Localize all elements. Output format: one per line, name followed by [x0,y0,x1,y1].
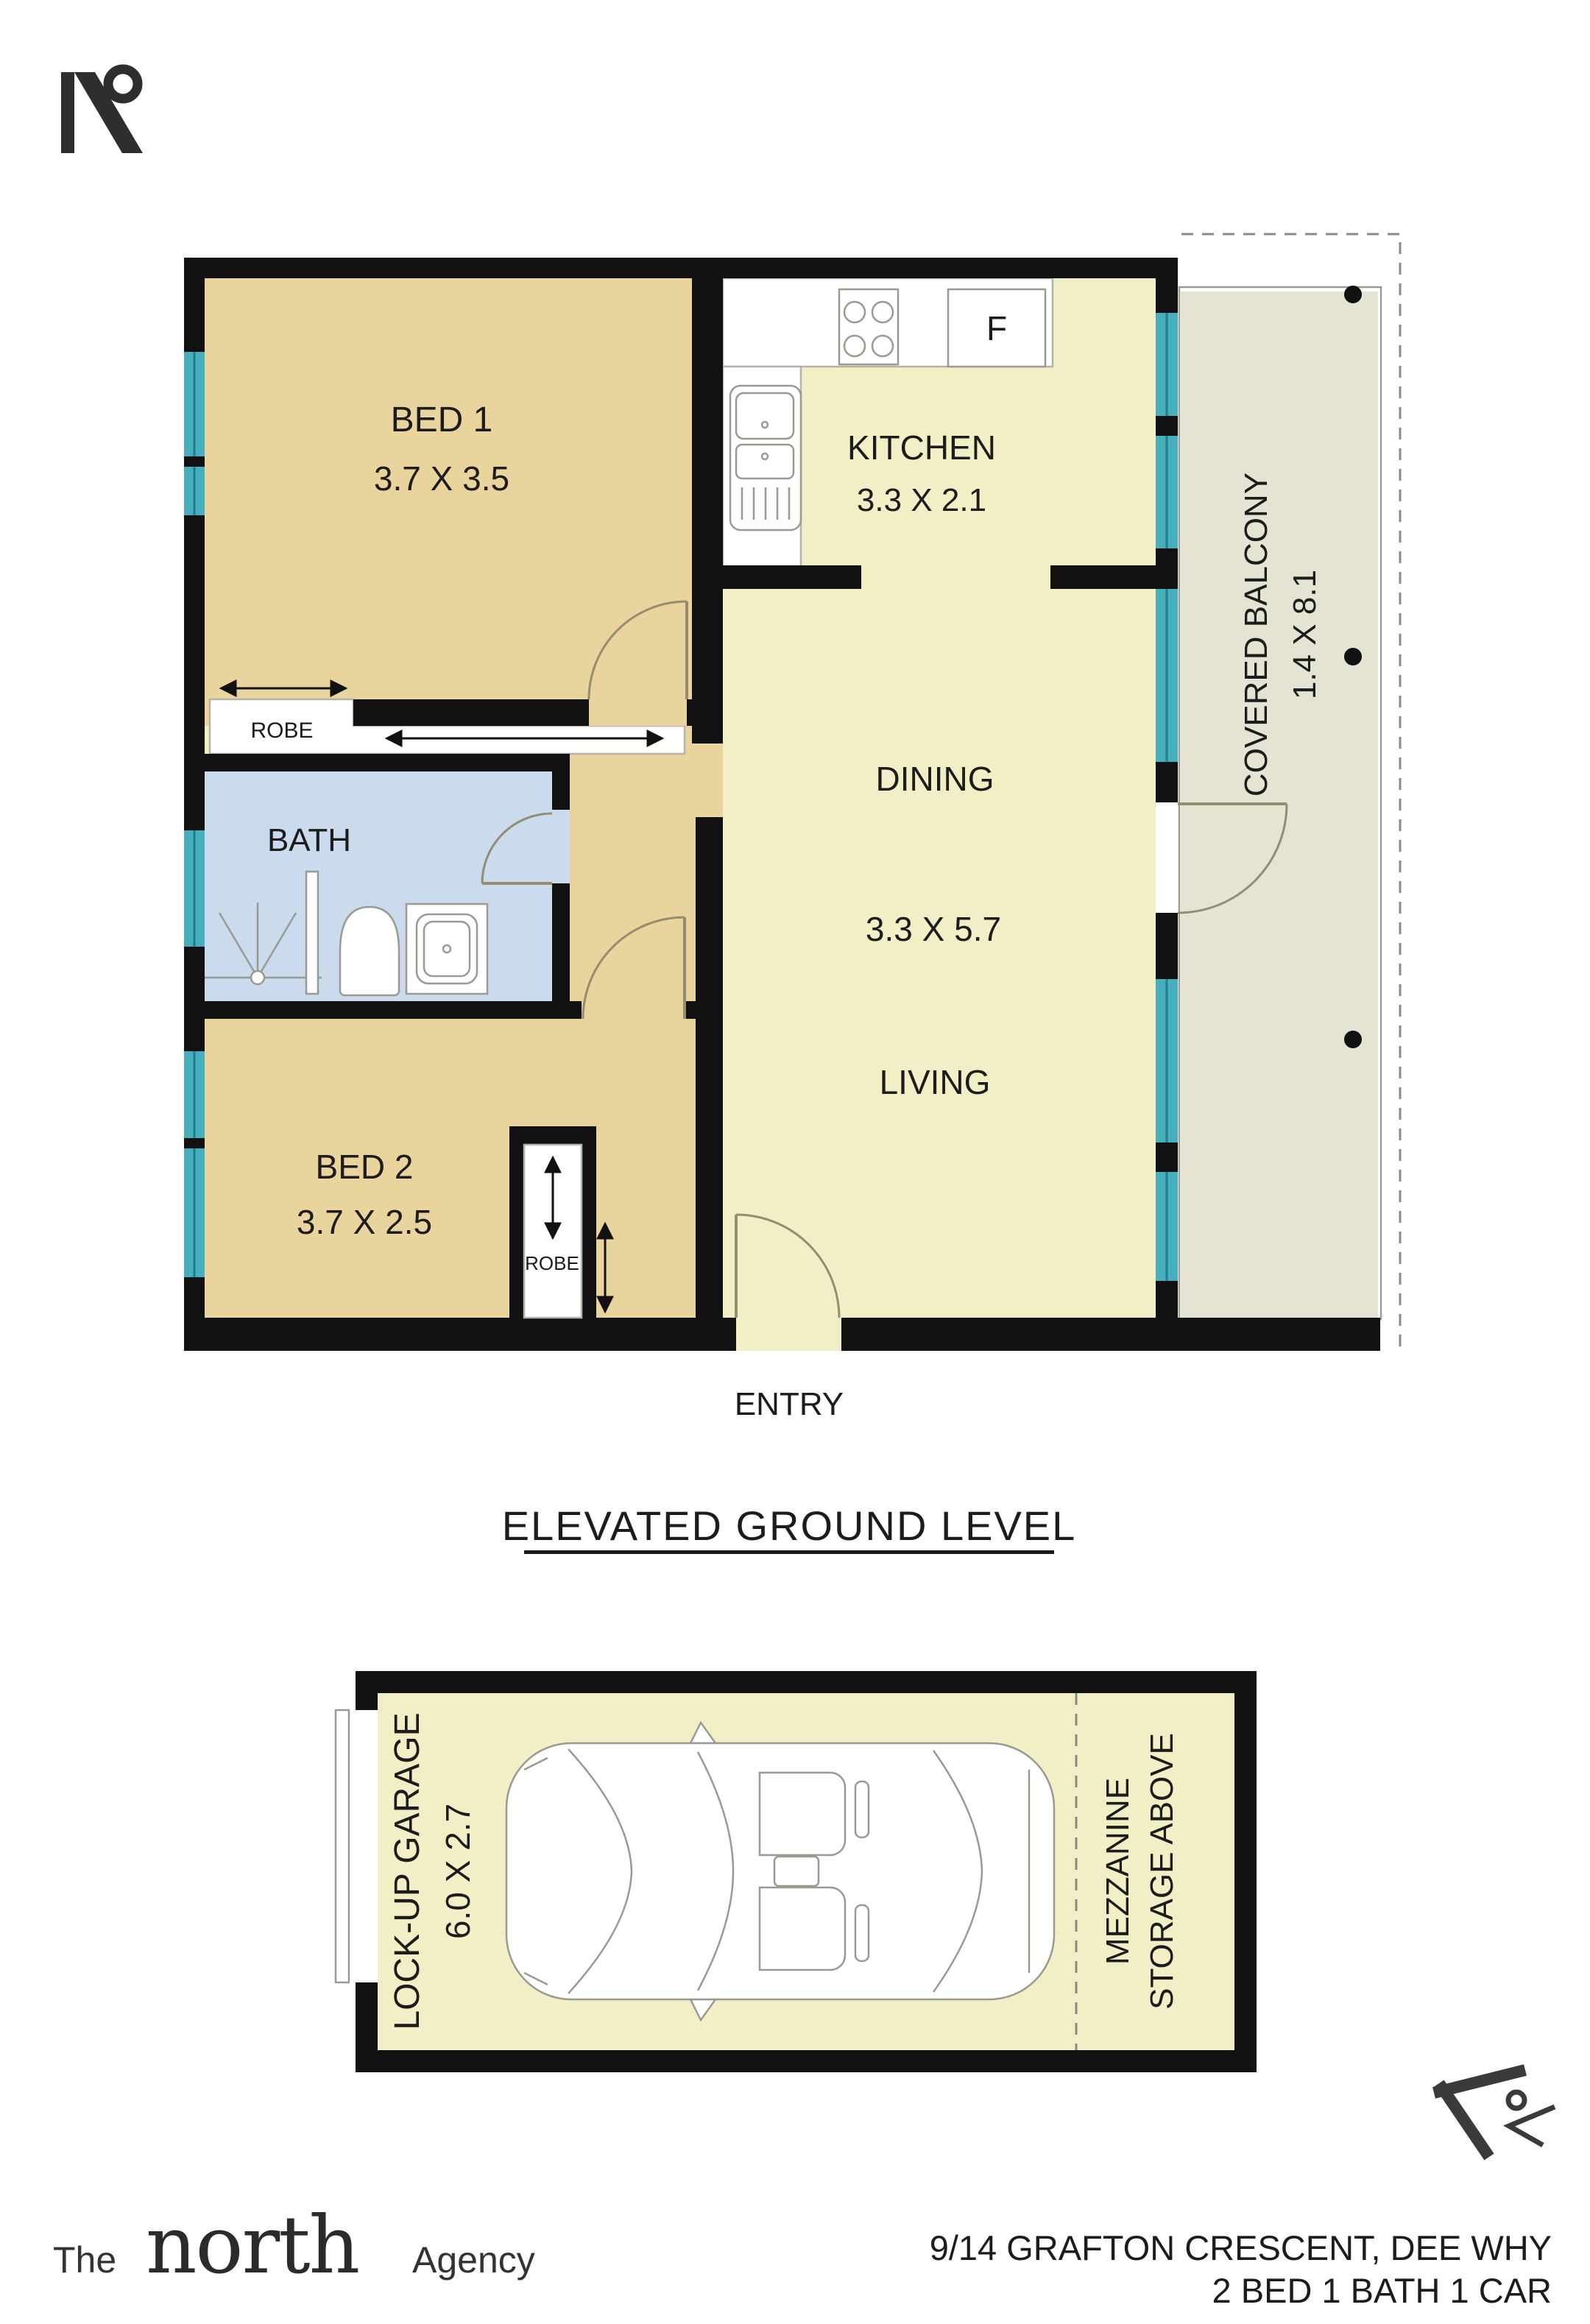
garage-wall-top [356,1671,1257,1693]
bed1-dims: 3.7 X 3.5 [374,459,509,498]
brand-name: north [146,2200,358,2292]
garage-wall-right [1234,1671,1257,2072]
balcony-post [1344,286,1362,303]
garage-wall-left-lower [356,1982,378,2072]
property-summary: 2 BED 1 BATH 1 CAR [1212,2271,1552,2310]
kitchen-dims: 3.3 X 2.1 [857,482,986,518]
wall-robe2-right [582,1126,596,1318]
wall-bath-right [552,771,570,1001]
living-window-2 [1156,1172,1178,1281]
balcony-post [1344,1031,1362,1048]
car-icon [506,1723,1054,2020]
north-compass-rotated-icon [1434,2070,1555,2157]
bed2-door-opening [582,1001,685,1019]
kitchen-window-1 [1156,313,1178,416]
robe2-label: ROBE [525,1252,579,1274]
wall-kitchen-divider-b [1050,565,1156,589]
hallway-floor [570,726,696,1019]
level-title-text: ELEVATED GROUND LEVEL [502,1502,1077,1549]
bed2-dims: 3.7 X 2.5 [297,1203,432,1241]
bath-window [184,830,205,947]
balcony-door-opening [1156,802,1178,913]
hall-dining-opening [692,744,723,817]
wall-bed1-door-stub [687,699,723,726]
bed1-door-opening [589,699,687,726]
entry-door-opening [736,1318,841,1351]
toilet-icon [340,907,399,995]
footer: The north Agency 9/14 GRAFTON CRESCENT, … [53,2200,1552,2310]
wall-kitchen-divider-a [723,565,861,589]
bed1-label: BED 1 [391,400,493,439]
robe1-label: ROBE [250,718,313,743]
balcony [1179,234,1400,1349]
wall-bath-bed2 [205,1001,582,1019]
wall-dining-left [696,817,723,1318]
wall-bath-top [205,754,570,771]
balcony-dims: 1.4 X 8.1 [1287,570,1323,699]
garage-door [336,1710,349,1982]
wall-top [184,258,1178,278]
mezzanine-label-line2: STORAGE ABOVE [1144,1733,1180,2010]
bath-door-opening [552,810,570,883]
wall-kitchen-left [692,278,723,744]
living-label: LIVING [880,1063,991,1101]
bath-partition [306,872,318,994]
living-window-1 [1156,979,1178,1142]
dining-dims: 3.3 X 5.7 [866,910,1001,948]
mezzanine-label-line1: MEZZANINE [1100,1778,1136,1965]
bed1-window-2 [184,467,205,515]
dining-window [1156,589,1178,762]
wall-robe1 [353,699,589,726]
brand-prefix: The [53,2239,116,2281]
bed2-window-1 [184,1051,205,1138]
address: 9/14 GRAFTON CRESCENT, DEE WHY [930,2228,1552,2267]
kitchen-window-2 [1156,436,1178,548]
bath-label: BATH [267,822,351,858]
balcony-label: COVERED BALCONY [1238,473,1274,797]
fridge-label: F [986,309,1007,347]
bed2-window-2 [184,1148,205,1277]
brand-suffix: Agency [412,2239,535,2281]
entry-label: ENTRY [735,1386,844,1422]
bed2-floor [205,1019,696,1318]
garage-wall-left-upper [356,1671,378,1710]
wall-hall-stub [685,1001,723,1019]
stove-icon [839,289,898,364]
floorplan-page: BED 1 3.7 X 3.5 KITCHEN 3.3 X 2.1 F DINI… [0,0,1590,2324]
garage-dims: 6.0 X 2.7 [439,1804,477,1939]
wall-right [1156,258,1178,1332]
bed1-window-1 [184,352,205,456]
kitchen-label: KITCHEN [847,428,996,467]
balcony-post [1344,648,1362,665]
vanity-icon [406,904,487,994]
bed1-floor [205,278,692,726]
garage-wall-bottom [356,2050,1257,2072]
bed2-label: BED 2 [316,1148,414,1186]
dining-label: DINING [876,760,994,798]
level-title: ELEVATED GROUND LEVEL [502,1502,1077,1554]
apartment-floor-plan: BED 1 3.7 X 3.5 KITCHEN 3.3 X 2.1 F DINI… [184,234,1400,1554]
wall-robe2-left [509,1126,524,1318]
sink-icon [730,386,801,530]
north-compass-icon [61,69,143,153]
level-title-underline [524,1550,1054,1554]
garage-plan: LOCK-UP GARAGE 6.0 X 2.7 MEZZANINE STORA… [336,1671,1257,2072]
garage-label: LOCK-UP GARAGE [388,1712,427,2030]
